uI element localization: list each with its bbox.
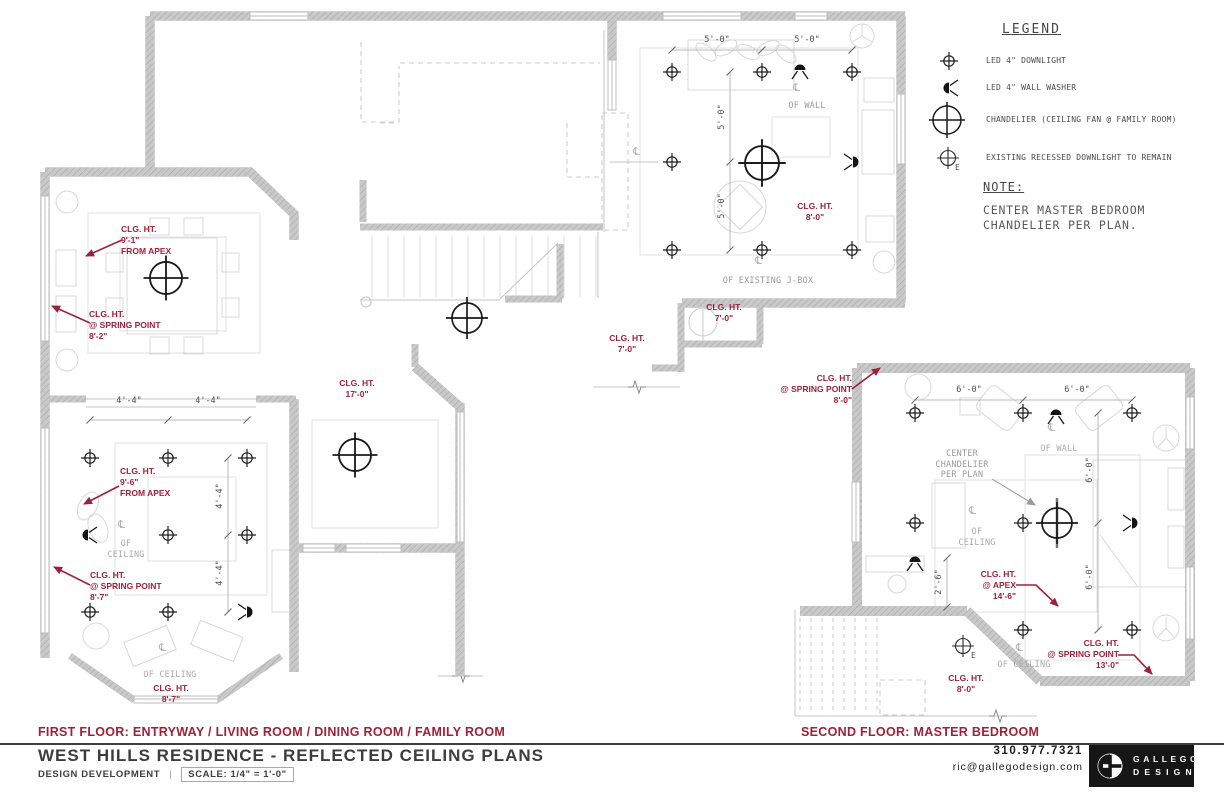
- dim-family-top-a: 5'-0": [704, 35, 730, 45]
- dim-living-right-a: 4'-4": [215, 483, 225, 509]
- downlight-symbol: [1123, 404, 1141, 422]
- logo-line-2: DESIGN: [1133, 767, 1197, 777]
- first-floor-caption: FIRST FLOOR: ENTRYWAY / LIVING ROOM / DI…: [38, 725, 505, 739]
- centerline-symbol: ℄: [118, 518, 125, 531]
- downlight-symbol: [663, 153, 681, 171]
- chandelier-symbol: [144, 256, 189, 301]
- downlight-symbol: [159, 603, 177, 621]
- label-center-chandelier: CENTERCHANDELIERPER PLAN: [935, 449, 988, 481]
- break-marks: [452, 381, 1007, 722]
- annotation-living-spring-point: CLG. HT.@ SPRING POINT8'-7": [90, 570, 162, 602]
- wall-washer-symbol: [1123, 515, 1138, 531]
- downlight-symbol: [663, 241, 681, 259]
- wall-washer-symbol: [907, 557, 923, 572]
- downlight-symbol: [1014, 514, 1032, 532]
- annotation-living-apex: CLG. HT.9'-6"FROM APEX: [120, 466, 170, 498]
- phone-number: 310.977.7321: [993, 745, 1083, 757]
- wall-washer-symbol: [844, 154, 859, 170]
- led-wall-washer-icon: [934, 73, 964, 103]
- chandelier-icon: [929, 102, 967, 140]
- note-title: NOTE:: [983, 180, 1024, 194]
- dim-living-right-b: 4'-4": [215, 560, 225, 586]
- label-of-ceiling-mb: OFCEILING: [958, 527, 995, 548]
- centerline-symbol: ℄: [1048, 421, 1055, 434]
- annotation-mb-flat-ceiling: CLG. HT.8'-0": [948, 673, 983, 695]
- dim-family-left-b: 5'-0": [717, 193, 727, 219]
- walls-first-floor: [45, 16, 905, 700]
- dim-living-top-a: 4'-4": [116, 396, 142, 406]
- gallego-design-logo: GALLEGO DESIGN: [1089, 745, 1194, 787]
- dim-mb-right-a: 6'-0": [1085, 457, 1095, 483]
- project-title: WEST HILLS RESIDENCE - REFLECTED CEILING…: [38, 746, 544, 766]
- logo-line-1: GALLEGO: [1133, 754, 1200, 764]
- legend-item-label: CHANDELIER (CEILING FAN @ FAMILY ROOM): [986, 115, 1177, 124]
- downlight-symbol: [159, 449, 177, 467]
- title-block-subrow: DESIGN DEVELOPMENT | SCALE: 1/4" = 1'-0": [38, 767, 294, 782]
- downlight-symbol: [1014, 404, 1032, 422]
- existing-fixture-tag: E: [955, 163, 960, 172]
- phase-label: DESIGN DEVELOPMENT: [38, 769, 160, 780]
- second-floor-caption: SECOND FLOOR: MASTER BEDROOM: [801, 725, 1039, 739]
- centerline-symbol: ℄: [159, 641, 166, 654]
- label-of-ceiling-bay: OF CEILING: [143, 670, 196, 681]
- downlight-symbol: [663, 63, 681, 81]
- legend-title: LEGEND: [1002, 22, 1061, 37]
- annotation-family-ceiling-height: CLG. HT.8'-0": [797, 201, 832, 223]
- dim-mb-top-b: 6'-0": [1064, 385, 1090, 395]
- centerline-symbol: ℄: [755, 254, 762, 267]
- downlight-symbol: [906, 514, 924, 532]
- label-of-ceiling-living: OFCEILING: [107, 539, 144, 560]
- downlight-symbol: [753, 63, 771, 81]
- annotation-mb-apex: CLG. HT.@ APEX14'-6": [981, 569, 1016, 601]
- logo-mark-icon: [1095, 751, 1125, 781]
- dim-mb-top-a: 6'-0": [956, 385, 982, 395]
- centerline-symbol: ℄: [969, 504, 976, 517]
- annotation-dining-spring-point: CLG. HT.@ SPRING POINT8'-2": [89, 309, 161, 341]
- annotation-mb-spring-lower: CLG. HT.@ SPRING POINT13'-0": [1047, 638, 1119, 670]
- centerline-symbol: ℄: [633, 145, 640, 158]
- annotation-mb-spring-upper: CLG. HT.@ SPRING POINT8'-0": [780, 373, 852, 405]
- centerline-symbol: ℄: [1016, 641, 1023, 654]
- downlight-symbol: [238, 449, 256, 467]
- dim-family-left-a: 5'-0": [717, 104, 727, 130]
- annotation-hall-ceiling-height: CLG. HT.7'-0": [609, 333, 644, 355]
- wall-washer-symbol: [238, 604, 253, 620]
- divider: |: [169, 769, 172, 780]
- downlight-symbol: [906, 404, 924, 422]
- downlight-symbol: [159, 526, 177, 544]
- ceiling-fan-chandelier-symbol: [738, 139, 785, 186]
- label-of-ceiling-mb-lower: OF CEILING: [997, 660, 1050, 671]
- chandelier-symbol: [1036, 502, 1078, 544]
- chandelier-symbol: [333, 433, 378, 478]
- dim-living-top-b: 4'-4": [195, 396, 221, 406]
- downlight-symbol: [238, 526, 256, 544]
- downlight-symbol: [1123, 621, 1141, 639]
- label-of-wall-mb: OF WALL: [1040, 444, 1077, 455]
- downlight-symbol: [81, 603, 99, 621]
- note-text: CENTER MASTER BEDROOMCHANDELIER PER PLAN…: [983, 203, 1145, 233]
- legend-item-label: LED 4" WALL WASHER: [986, 83, 1076, 92]
- annotation-dining-apex: CLG. HT.9'-1"FROM APEX: [121, 224, 171, 256]
- email-address: ric@gallegodesign.com: [953, 761, 1083, 773]
- legend-item-label: EXISTING RECESSED DOWNLIGHT TO REMAIN: [986, 153, 1172, 162]
- led-downlight-icon: [934, 46, 964, 76]
- downlight-symbol: [81, 449, 99, 467]
- annotation-entry-ceiling-height: CLG. HT.17'-0": [339, 378, 374, 400]
- label-of-wall-family: OF WALL: [788, 101, 825, 112]
- dim-mb-right-b: 6'-0": [1085, 564, 1095, 590]
- reflected-ceiling-plan-sheet: CLG. HT.9'-1"FROM APEX CLG. HT.@ SPRING …: [0, 0, 1224, 792]
- staircase-second-floor: [800, 618, 877, 713]
- dim-mb-desk: 2'-6": [934, 569, 944, 595]
- light-fixtures-second-floor: [906, 404, 1141, 657]
- legend-item-label: LED 4" DOWNLIGHT: [986, 56, 1066, 65]
- centerline-symbol: ℄: [793, 81, 800, 94]
- annotation-bay-ceiling-height: CLG. HT.8'-7": [153, 683, 188, 705]
- existing-fixture-tag: E: [971, 651, 976, 660]
- chandelier-leader-line: [992, 479, 1035, 505]
- chandelier-symbol: [446, 297, 488, 339]
- label-of-existing-jbox: OF EXISTING J-BOX: [723, 276, 813, 287]
- dim-family-top-b: 5'-0": [794, 35, 820, 45]
- scale-label: SCALE: 1/4" = 1'-0": [181, 767, 293, 782]
- downlight-symbol: [1014, 621, 1032, 639]
- annotation-alcove-ceiling-height: CLG. HT.7'-0": [706, 302, 741, 324]
- wall-washer-symbol: [83, 527, 98, 543]
